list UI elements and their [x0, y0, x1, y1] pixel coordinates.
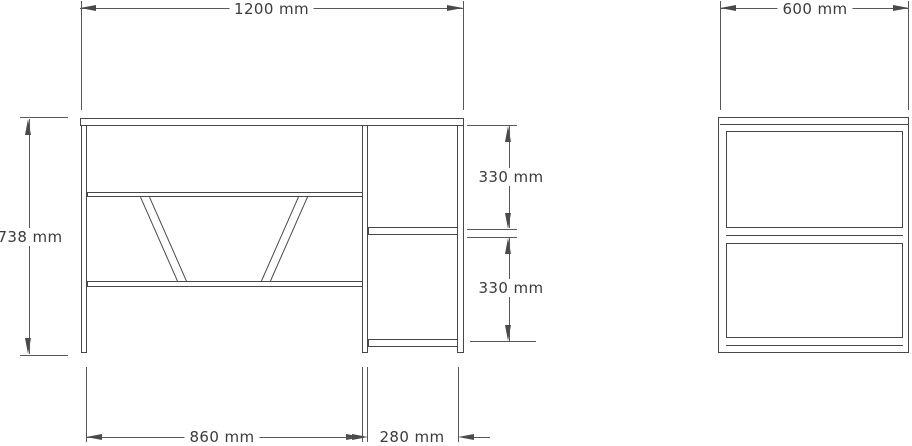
- dim-860-ext-right: [362, 367, 363, 442]
- dim-1200-arrowhead-left: [80, 5, 96, 11]
- dim-860-ext-left: [86, 367, 87, 442]
- front-left-leg: [81, 118, 88, 353]
- dim-738-label: 738 mm: [0, 228, 68, 246]
- dim-280-label: 280 mm: [374, 428, 449, 446]
- dim-860-arrowhead-left: [86, 434, 102, 440]
- dim-738-arrowhead-top: [25, 119, 31, 135]
- side-upper-panel: [726, 131, 903, 229]
- dim-280-arrowhead-left: [352, 434, 368, 440]
- front-right-leg: [457, 118, 464, 353]
- dim-738-arrowhead-bottom: [25, 338, 31, 354]
- v-brace-right-inner: [261, 196, 299, 281]
- side-lower-panel: [726, 243, 903, 339]
- side-mid-shelf-line: [726, 235, 903, 236]
- dim-330-upper-ext-bottom: [467, 229, 517, 230]
- technical-drawing-canvas: 1200 mm 738 mm 330 mm 330 mm 860 mm: [0, 0, 912, 446]
- dim-600-arrowhead-right: [893, 5, 909, 11]
- dim-330-lower-arrowhead-top: [505, 238, 511, 254]
- dim-738-ext-top: [20, 117, 68, 118]
- dim-600-label: 600 mm: [777, 0, 852, 18]
- dim-600-ext-right: [908, 1, 909, 110]
- v-brace-left-inner: [149, 197, 187, 282]
- v-brace-left-outer: [140, 197, 178, 282]
- front-right-mid-shelf: [368, 227, 458, 235]
- dim-600-arrowhead-left: [720, 5, 736, 11]
- dim-280-tail-right: [474, 437, 490, 438]
- dim-1200-arrowhead-right: [447, 5, 463, 11]
- dim-1200-ext-right: [463, 1, 464, 110]
- dim-860-label: 860 mm: [184, 428, 259, 446]
- side-desktop-underline: [720, 124, 908, 125]
- dim-330-upper-arrowhead-bottom: [505, 213, 511, 229]
- v-brace-right-outer: [270, 196, 308, 281]
- dim-1200-ext-left: [81, 1, 82, 110]
- dim-330-upper-label: 330 mm: [473, 168, 548, 186]
- dim-280-arrowhead-right: [458, 434, 474, 440]
- dim-330-lower-ext-bottom: [470, 341, 536, 342]
- front-right-bottom-shelf: [368, 339, 458, 347]
- front-upper-shelf: [87, 192, 363, 198]
- dim-330-upper-arrowhead-top: [505, 126, 511, 142]
- side-bottom-shelf-line: [726, 345, 903, 346]
- dim-280-ext-right: [458, 367, 459, 442]
- dim-280-ext-left: [367, 367, 368, 442]
- front-lower-shelf: [87, 281, 363, 288]
- dim-600-ext-left: [720, 1, 721, 110]
- front-desktop: [80, 118, 464, 126]
- dim-280-tail-left: [340, 437, 352, 438]
- dim-738-ext-bottom: [20, 355, 68, 356]
- dim-1200-label: 1200 mm: [229, 0, 314, 18]
- dim-330-lower-label: 330 mm: [473, 279, 548, 297]
- front-center-divider: [362, 124, 368, 353]
- dim-330-lower-arrowhead-bottom: [505, 325, 511, 341]
